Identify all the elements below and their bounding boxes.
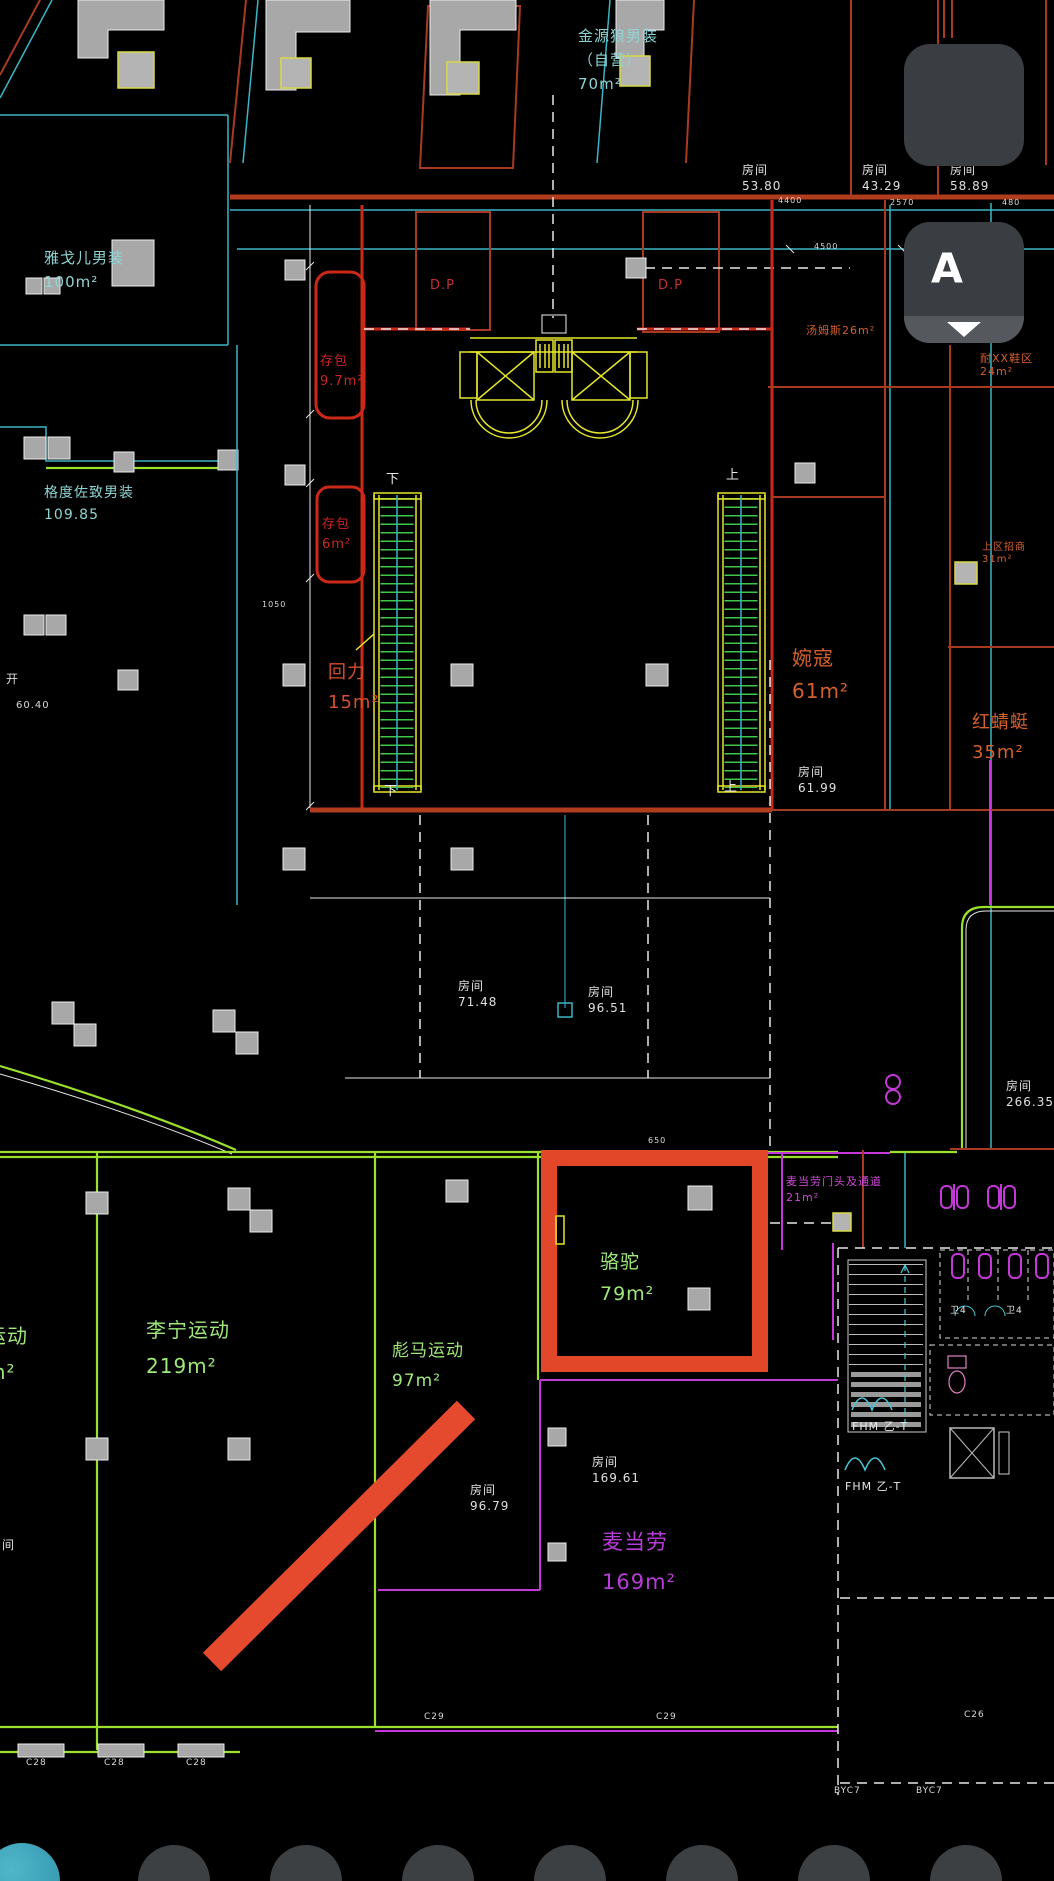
right-rooms [768,200,1054,1150]
escalator-right [718,493,765,792]
service-core-hatched-block [833,1240,1054,1795]
annotation-style-button[interactable]: A [904,222,1024,343]
toilet-stalls [930,1250,1054,1415]
floorplan-drawing [0,0,1054,1881]
top-band-rooms [0,0,1054,345]
elevator [945,1428,1009,1478]
svg-text:A: A [931,245,963,292]
chat-button[interactable] [904,44,1024,166]
atrium [283,205,850,870]
left-band [0,240,238,1154]
chat-bubbles-icon [933,78,995,132]
stairs [848,1260,926,1432]
escalator-left [356,493,421,792]
highlight-box [549,1158,760,1364]
cad-viewer-canvas[interactable]: 金源狼男装 （自营） 70m²房间 53.80房间 43.29房间 58.89雅… [0,0,1054,1881]
chevron-down-icon[interactable] [904,316,1024,343]
text-annotation-icon: A [931,245,997,293]
entrance-revolving-doors [460,315,647,438]
